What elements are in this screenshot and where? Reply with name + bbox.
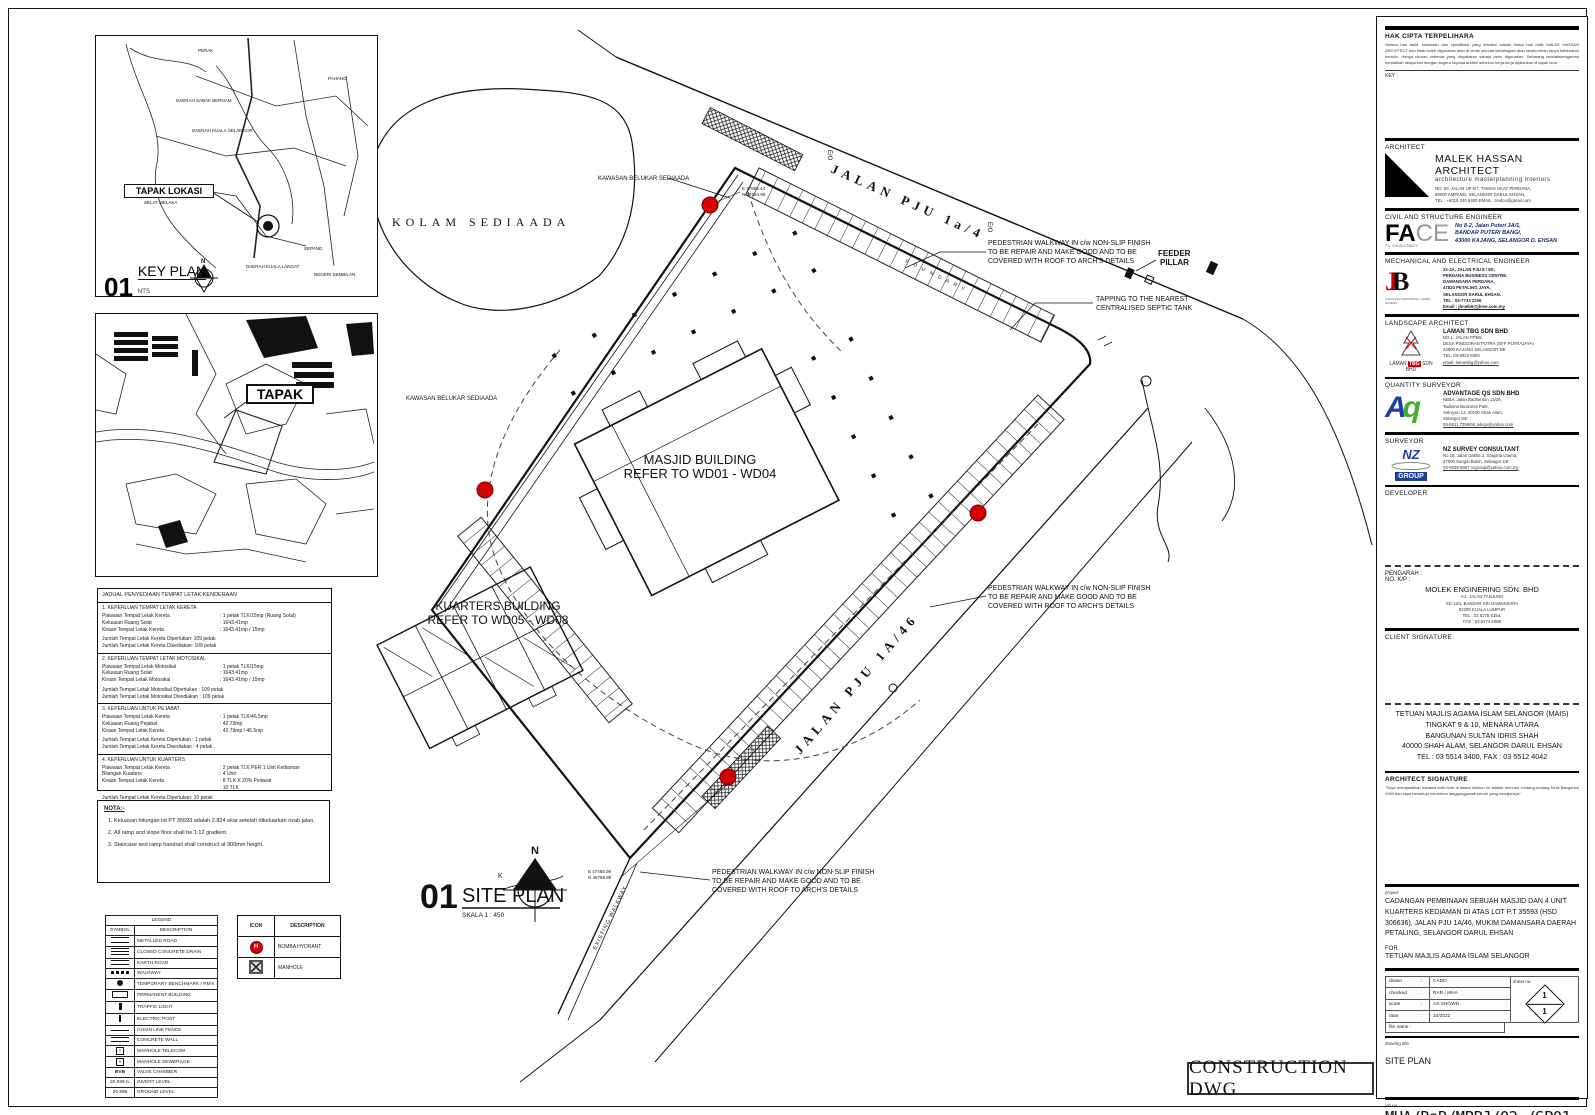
svg-text:PEDESTRIAN WALKWAY IN c/w NON-: PEDESTRIAN WALKWAY IN c/w NON-SLIP FINIS… [988, 240, 1150, 247]
surveyor-block: NZ GROUP NZ SURVEY CONSULTANT No 18, Jal… [1385, 447, 1579, 481]
tapak-callout: TAPAK [246, 384, 314, 404]
tapak-map [96, 314, 374, 573]
ground-level-symbol: 20.999 [106, 1088, 135, 1098]
permanent-building-symbol [112, 991, 128, 998]
tapak-plan-box: TAPAK [95, 313, 378, 577]
copyright-title: HAK CIPTA TERPELIHARA [1385, 33, 1579, 40]
electric-post-symbol [119, 1015, 121, 1022]
nota-item: Staircase and ramp handrail shall constr… [114, 842, 323, 850]
drawing-title-label: drawing title [1385, 1041, 1579, 1046]
mech-block: JB JURUTERA PERUNDING JAMES EASERN 22-2A… [1385, 267, 1579, 311]
nota-title: NOTA:- [104, 805, 323, 814]
job-no: MHA/RaR/MPPJ/02 /SP01 [1385, 1108, 1579, 1115]
valve-chamber-symbol: BVB [106, 1068, 135, 1078]
icon-table: ICONDESCRIPTION H BOMBA HYDRANT MANHOLE [237, 915, 341, 979]
bomba-hydrant-icon: H [250, 941, 263, 954]
hydrant-icon [970, 505, 986, 521]
benchmark-symbol [117, 980, 123, 986]
laman-tbg-logo: LAMAN TBG SDN BHD [1385, 329, 1437, 373]
svg-text:N: N [531, 845, 539, 857]
architect-block: MALEK HASSAN ARCHITECT architecture mast… [1385, 153, 1579, 205]
entrance-walkway-hatch [702, 107, 803, 170]
landscape-block: LAMAN TBG SDN BHD LAMAN TBG SDN BHD NO 1… [1385, 329, 1579, 373]
traffic-light-symbol [119, 1003, 122, 1010]
nota-item: Keluasan hitungan lot PT 35593 adalah 2.… [114, 818, 323, 826]
svg-text:COVERED WITH ROOF TO ARCH'S DE: COVERED WITH ROOF TO ARCH'S DETAILS [988, 603, 1134, 610]
architect-signature-fine: "Saya mempastikan bahawa butir-butir di … [1385, 785, 1579, 797]
architect-signature-label: ARCHITECT SIGNATURE [1385, 776, 1579, 783]
project-text: CADANGAN PEMBINAAN SEBUAH MASJID DAN 4 U… [1385, 897, 1579, 940]
for-value: TETUAN MAJLIS AGAMA ISLAM SELANGOR [1385, 952, 1579, 963]
region-label: PERAK [198, 48, 213, 53]
svg-text:K: K [498, 873, 503, 880]
file-name-label: file name : [1385, 1023, 1505, 1033]
invert-level-symbol: 20.999 IL [106, 1078, 135, 1088]
septic-note-2: CENTRALISED SEPTIC TANK [1096, 305, 1193, 312]
copyright-body: Semua hak taklif, kelulusan dan spesifik… [1385, 42, 1579, 66]
region-label: SEPANG [304, 246, 323, 251]
eo-mark-1: E/O [826, 150, 832, 161]
region-label: SELAT MELAKA [144, 200, 177, 205]
client-signature-label: CLIENT SIGNATURE [1385, 634, 1579, 641]
feeder-pillar-symbol [1124, 267, 1134, 279]
pond-outline [371, 89, 634, 311]
kolam-label: KOLAM SEDIAADA [392, 215, 570, 229]
svg-text:COVERED WITH ROOF TO ARCH'S DE: COVERED WITH ROOF TO ARCH'S DETAILS [712, 887, 858, 894]
landscape-section-label: LANDSCAPE ARCHITECT [1385, 320, 1579, 327]
jb-logo: JB JURUTERA PERUNDING JAMES EASERN [1385, 267, 1437, 305]
title-block: HAK CIPTA TERPELIHARA Semua hak taklif, … [1376, 16, 1588, 1099]
key-plan-title: 01 KEY PLAN NTS [104, 264, 206, 298]
concrete-wall-symbol [111, 1037, 129, 1042]
coord-n1: N 47554.99 [742, 192, 766, 197]
face-logo: FACE F.A. CONSULTANCY [1385, 223, 1449, 249]
feeder-pillar-label-1: FEEDER [1158, 249, 1191, 258]
coord-e2: E 47458.08 [588, 869, 612, 874]
walkway-note-bottom: PEDESTRIAN WALKWAY IN c/w NON-SLIP FINIS… [640, 869, 874, 894]
civil-block: FACE F.A. CONSULTANCY No 8-2, Jalan Pute… [1385, 223, 1579, 249]
developer-section-label: DEVELOPER [1385, 490, 1579, 497]
hydrant-icon [702, 197, 718, 213]
advantage-qs-logo: Aq [1385, 391, 1437, 425]
architect-section-label: ARCHITECT [1385, 144, 1579, 151]
internal-drive-3 [642, 424, 1038, 832]
parking-section-2: 2. KEPERLUAN TEMPAT LETAK MOTOSIKAL Piaw… [98, 654, 331, 705]
svg-text:PEDESTRIAN WALKWAY IN c/w NON-: PEDESTRIAN WALKWAY IN c/w NON-SLIP FINIS… [712, 869, 874, 876]
legend-title: LEGEND [106, 916, 218, 926]
mech-section-label: MECHANICAL AND ELECTRICAL ENGINEER [1385, 258, 1579, 265]
region-label: NEGERI SEMBILAN [314, 272, 355, 277]
nz-group-logo: NZ GROUP [1385, 447, 1437, 481]
earth-road-symbol [111, 960, 129, 965]
chain-link-fence-symbol [111, 1030, 129, 1031]
belukar-label-1: KAWASAN BELUKAR SEDIAADA [598, 176, 689, 182]
concrete-drain-symbol [111, 948, 129, 955]
pengarah-block: PENGARAH : NO. K/P : MOLEK ENGINERING SD… [1385, 571, 1579, 625]
construction-dwg-stamp: CONSTRUCTION DWG [1187, 1062, 1374, 1095]
drawing-title: SITE PLAN [1385, 1056, 1579, 1066]
key-plan-box: PERAK PAHANG DAERAH SABAK BERNAM DAERAH … [95, 35, 378, 297]
road-bottom-edge1 [600, 408, 1148, 1020]
north-compass: N K [498, 845, 567, 922]
parking-provision-table: JADUAL PENYEDIAAN TEMPAT LETAK KENDERAAN… [97, 588, 332, 791]
septic-note-1: TAPPING TO THE NEAREST [1096, 296, 1189, 303]
project-label: project [1385, 890, 1579, 895]
client-block: TETUAN MAJLIS AGAMA ISLAM SELANGOR (MAIS… [1385, 709, 1579, 763]
coord-e1: E 47555.44 [742, 186, 766, 191]
region-label: DAERAH KUALA SELANGOR [192, 128, 254, 133]
region-label: PAHANG [328, 76, 347, 81]
parking-table-title: JADUAL PENYEDIAAN TEMPAT LETAK KENDERAAN [98, 589, 331, 603]
parking-section-3: 3. KEPERLUAN UNTUK PEJABAT Piawaian Temp… [98, 704, 331, 755]
svg-text:SKALA 1 : 450: SKALA 1 : 450 [462, 912, 505, 919]
manhole-telecom-symbol: T [116, 1047, 124, 1055]
region-label: DAERAH KUALA LANGAT [246, 264, 300, 269]
existing-walkway-label: EXISTING WALKWAY [592, 885, 628, 951]
metalled-road-symbol [111, 937, 129, 943]
architect-logo [1385, 153, 1429, 197]
masjid-label-2: REFER TO WD01 - WD04 [624, 466, 777, 481]
surveyor-section-label: SURVEYOR [1385, 438, 1579, 445]
parking-section-1: 1. KEPERLUAN TEMPAT LETAK KERETA Piawaia… [98, 603, 331, 654]
coord-n2: N 46758.99 [588, 875, 612, 880]
legend-table: LEGEND SYMBOLDESCRIPTION METALLED ROAD C… [105, 915, 218, 1098]
tapak-lokasi-callout: TAPAK LOKASI [124, 184, 214, 198]
key-label: KEY : [1385, 70, 1579, 79]
hydrant-icon [477, 482, 493, 498]
nota-box: NOTA:- Keluasan hitungan lot PT 35593 ad… [97, 800, 330, 883]
manhole-icon [249, 960, 263, 974]
feeder-pillar-label-2: PILLAR [1160, 258, 1189, 267]
qs-section-label: QUANTITY SURVEYOR [1385, 382, 1579, 389]
svg-text:PEDESTRIAN WALKWAY IN c/w NON-: PEDESTRIAN WALKWAY IN c/w NON-SLIP FINIS… [988, 585, 1150, 592]
region-label: DAERAH SABAK BERNAM [176, 98, 232, 103]
kuarters-label-2: REFER TO WD05 - WD08 [428, 613, 569, 627]
internal-drive-2 [487, 350, 920, 761]
eo-mark-2: E/O [986, 222, 992, 233]
svg-text:01: 01 [420, 878, 458, 916]
walkway-symbol [111, 971, 129, 974]
drawing-sheet: KOLAM SEDIAADA KAWASAN BELUKAR SEDIAADA … [0, 0, 1595, 1115]
hydrant-icon [720, 769, 736, 785]
kuarters-label-1: KUARTERS BUILDING [435, 599, 560, 613]
belukar-label-2: KAWASAN BELUKAR SEDIAADA [406, 396, 497, 402]
meta-block: drawn:CADD checked:RAR / MHA scale:AS SH… [1385, 974, 1579, 1023]
svg-text:TO BE REPAIR AND MAKE GOOD AND: TO BE REPAIR AND MAKE GOOD AND TO BE [988, 594, 1137, 601]
nota-item: All ramp and slope floor shall be 1:12 g… [114, 830, 323, 838]
qs-block: Aq ADVANTAGE QS SDN BHD NB5A, Jalan Badm… [1385, 391, 1579, 428]
masjid-label-1: MASJID BUILDING [644, 452, 757, 467]
svg-text:TO BE REPAIR AND MAKE GOOD AND: TO BE REPAIR AND MAKE GOOD AND TO BE [988, 249, 1137, 256]
key-plan-map: PERAK PAHANG DAERAH SABAK BERNAM DAERAH … [96, 36, 374, 293]
manhole-sewerage-symbol: S [116, 1058, 124, 1066]
svg-text:TO BE REPAIR AND MAKE GOOD AND: TO BE REPAIR AND MAKE GOOD AND TO BE [712, 878, 861, 885]
svg-text:COVERED WITH ROOF TO ARCH'S DE: COVERED WITH ROOF TO ARCH'S DETAILS [988, 258, 1134, 265]
walkway-note-mid: PEDESTRIAN WALKWAY IN c/w NON-SLIP FINIS… [930, 585, 1150, 610]
